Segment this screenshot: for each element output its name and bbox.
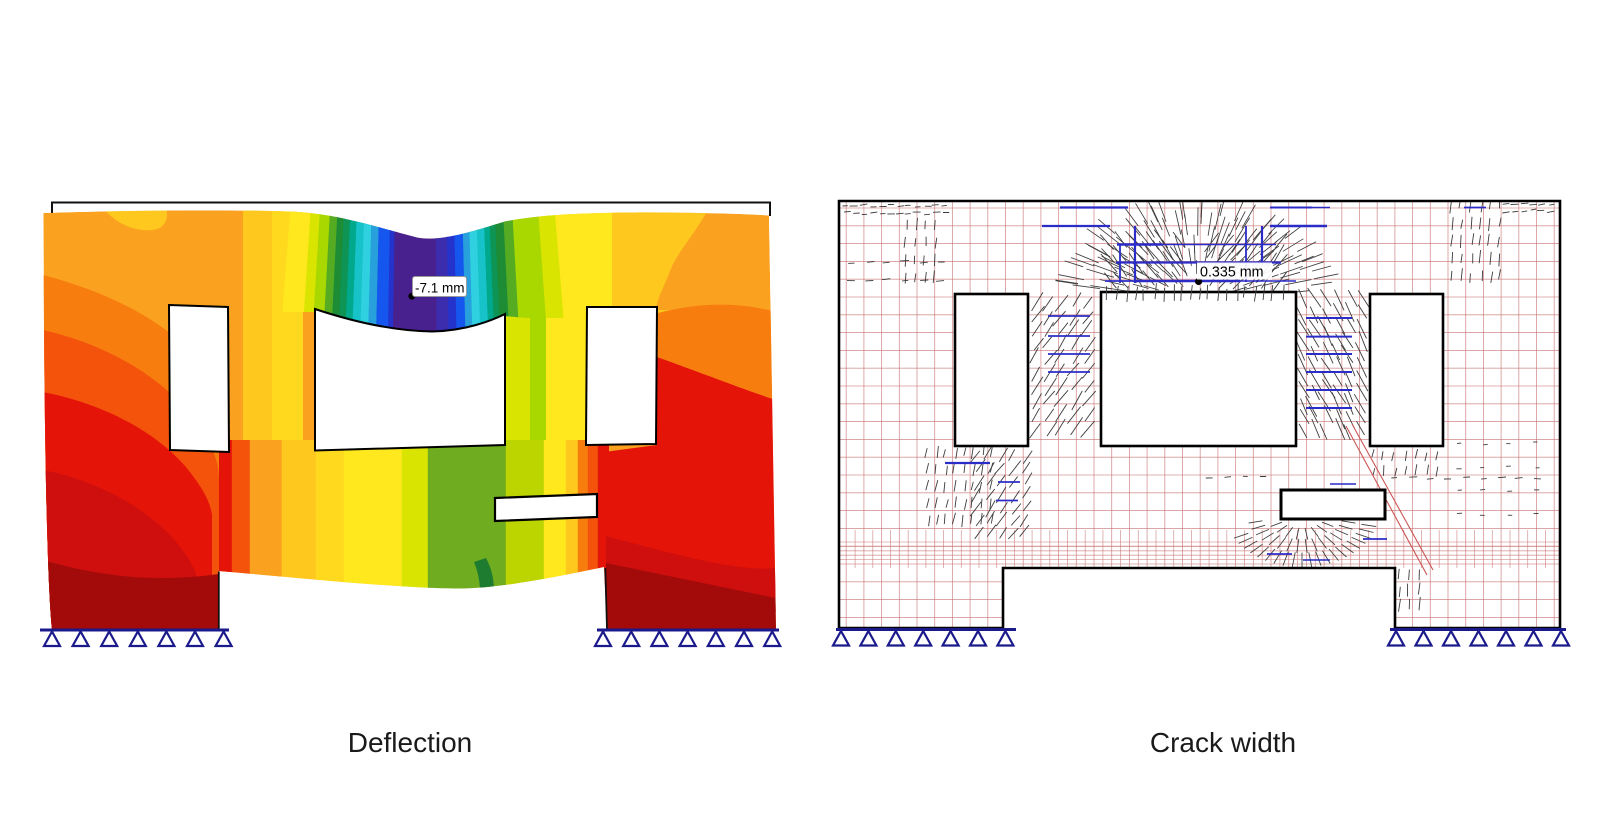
svg-text:0.335 mm: 0.335 mm xyxy=(1200,265,1264,281)
svg-text:Crack width: Crack width xyxy=(1150,727,1296,758)
svg-text:Deflection: Deflection xyxy=(348,727,473,758)
svg-text:-7.1 mm: -7.1 mm xyxy=(415,281,465,296)
